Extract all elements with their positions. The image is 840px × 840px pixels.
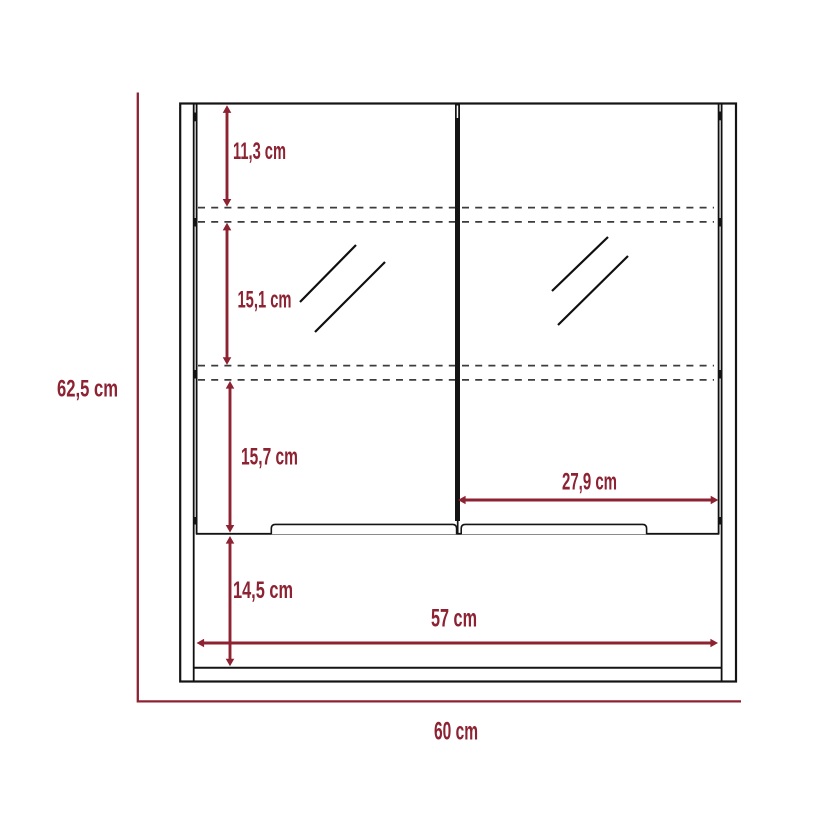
svg-text:14,5 cm: 14,5 cm — [233, 577, 293, 604]
svg-text:60 cm: 60 cm — [434, 718, 478, 746]
svg-text:11,3 cm: 11,3 cm — [233, 138, 286, 165]
svg-text:15,1 cm: 15,1 cm — [238, 287, 292, 314]
svg-text:57 cm: 57 cm — [431, 605, 477, 633]
svg-text:27,9 cm: 27,9 cm — [562, 469, 617, 496]
svg-text:15,7 cm: 15,7 cm — [241, 444, 298, 471]
svg-text:62,5 cm: 62,5 cm — [57, 376, 118, 403]
